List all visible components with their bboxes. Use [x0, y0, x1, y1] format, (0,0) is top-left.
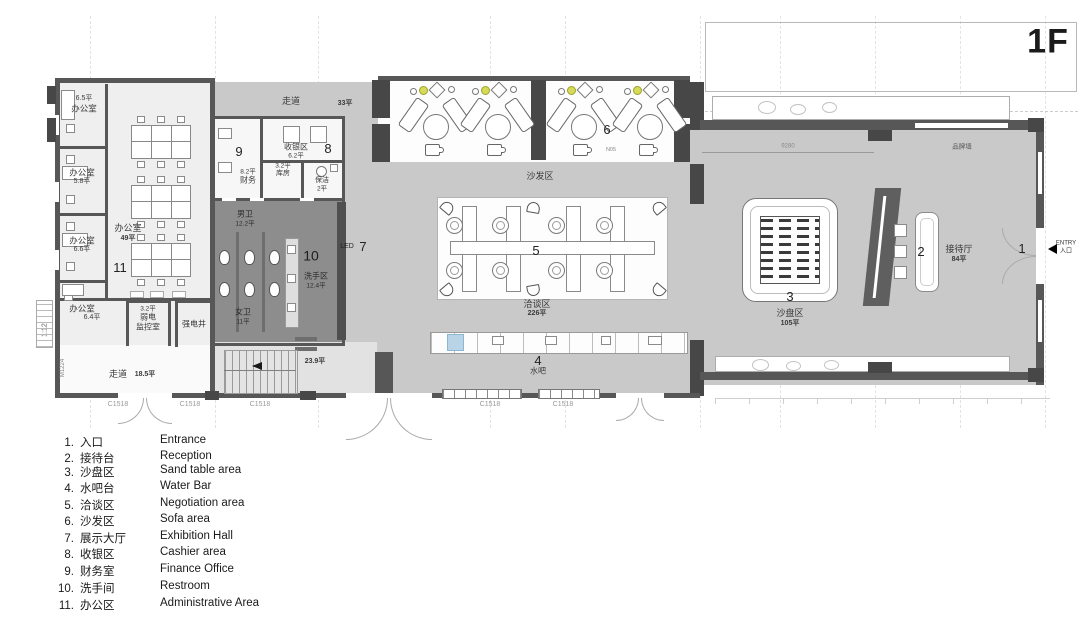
legend-en: Sand table area	[160, 464, 241, 476]
room-name: 保洁	[315, 177, 329, 185]
decor-circle	[558, 88, 565, 95]
column	[1028, 118, 1044, 132]
legend-row: 7.展示大厅Exhibition Hall	[52, 530, 392, 545]
wall	[342, 116, 345, 202]
wall	[105, 84, 108, 301]
sofa-cluster	[622, 90, 680, 160]
window-tag: C1518	[108, 401, 129, 409]
decor-circle	[472, 88, 479, 95]
sink	[287, 274, 296, 283]
armchair	[487, 144, 502, 156]
office-chair	[66, 155, 75, 164]
legend-zh: 洗手间	[80, 583, 115, 595]
room-name: 财务	[240, 177, 256, 186]
room-name: 洽谈区	[523, 300, 550, 310]
legend-zh: 入口	[80, 437, 103, 449]
armchair	[573, 144, 588, 156]
room-area: 105平	[781, 320, 800, 328]
brand-wall-label: 品牌墙	[952, 143, 972, 150]
pilaster	[47, 118, 56, 142]
office-chair	[157, 221, 165, 228]
bar-appliance	[601, 336, 611, 345]
water-bar-sink	[447, 334, 464, 351]
dimension-value: 9280	[781, 144, 794, 151]
room-name: 办公室	[71, 104, 97, 113]
wall	[260, 118, 263, 200]
wall	[57, 280, 107, 283]
desk-cluster	[131, 176, 191, 228]
door-tag: M1224	[60, 359, 66, 377]
office-chair	[157, 176, 165, 183]
legend-row: 10.洗手间Restroom	[52, 580, 392, 595]
decor-circle	[510, 86, 517, 93]
room-number: 3	[786, 290, 793, 304]
led-wall-label: LED	[340, 243, 354, 251]
cleaning-fixture	[330, 164, 338, 172]
canopy-tick-band	[715, 398, 1050, 404]
room-area: 5.8平	[74, 178, 91, 186]
entry-label-en: ENTRY	[1056, 241, 1076, 248]
room-area: 18.5平	[135, 371, 156, 379]
desk-grid	[131, 185, 191, 219]
furniture-tag: N05	[606, 147, 616, 153]
room-name: 强电井	[182, 321, 206, 330]
wall	[700, 372, 1042, 380]
room-area: 6.2平	[288, 152, 304, 159]
legend-number: 8.	[52, 549, 74, 561]
door-swing-arc	[390, 398, 432, 440]
room-name: 库房	[276, 170, 290, 178]
armchair-arm	[501, 147, 506, 153]
coffee-table	[571, 114, 597, 140]
room-number: 8	[324, 142, 331, 156]
toilet	[269, 250, 280, 265]
toilet	[269, 282, 280, 297]
room-number: 9	[235, 145, 242, 159]
armchair-arm	[587, 147, 592, 153]
armchair	[425, 144, 440, 156]
wall	[301, 162, 304, 200]
cashier-counter	[283, 126, 300, 143]
room-name: 女卫	[235, 309, 251, 318]
door-swing-arc	[616, 398, 639, 421]
legend-zh: 财务室	[80, 566, 115, 578]
legend-zh: 沙发区	[80, 516, 115, 528]
room-number: 2	[917, 245, 924, 259]
legend-number: 1.	[52, 437, 74, 449]
room-area: 84平	[952, 256, 967, 264]
room-name: 办公室	[114, 224, 141, 234]
door-swing-arc	[146, 398, 172, 424]
room-number: 5	[532, 244, 539, 258]
plant-accent	[567, 86, 576, 95]
room-area: 3.2平	[140, 305, 156, 312]
room-name: 走道	[109, 370, 127, 380]
round-chair	[492, 217, 509, 234]
legend-number: 9.	[52, 566, 74, 578]
led-wall	[337, 202, 346, 340]
room-area: 33平	[338, 100, 353, 108]
finance-desk	[218, 162, 232, 173]
legend-en: Finance Office	[160, 563, 234, 575]
legend-number: 6.	[52, 516, 74, 528]
office-chair	[177, 176, 185, 183]
wall	[175, 300, 213, 303]
round-chair	[596, 262, 613, 279]
office-chair	[177, 161, 185, 168]
column	[205, 391, 219, 400]
office-chair	[177, 116, 185, 123]
office-chair	[137, 279, 145, 286]
office-chair	[137, 176, 145, 183]
legend-en: Entrance	[160, 434, 206, 446]
wall	[57, 213, 107, 216]
office-chair	[177, 279, 185, 286]
legend-row: 8.收银区Cashier area	[52, 546, 392, 561]
armchair-arm	[439, 147, 444, 153]
plant-accent	[419, 86, 428, 95]
negotiation-table-long	[450, 241, 655, 255]
room-name: 弱电	[140, 314, 156, 323]
office-chair	[157, 161, 165, 168]
legend-row: 3.沙盘区Sand table area	[52, 464, 392, 479]
room-name: 收银区	[284, 144, 308, 153]
floor-plan-canvas: 1F M—2	[0, 0, 1080, 624]
toilet	[244, 250, 255, 265]
room-name: 办公室	[69, 304, 95, 313]
reception-stool	[894, 266, 907, 279]
plant-accent	[481, 86, 490, 95]
ramp	[36, 300, 53, 348]
legend-row: 1.入口Entrance	[52, 434, 392, 449]
room-area: 12.2平	[235, 220, 254, 227]
room-name: 水吧	[530, 368, 546, 377]
round-chair	[548, 217, 565, 234]
legend-row: 9.财务室Finance Office	[52, 563, 392, 578]
office-chair	[137, 234, 145, 241]
column	[1028, 368, 1044, 382]
door-opening	[250, 198, 264, 201]
legend-zh: 办公区	[80, 600, 115, 612]
office-chair	[66, 262, 75, 271]
room-name: 走道	[282, 97, 300, 107]
sofa-cluster	[408, 90, 466, 160]
armchair-arm	[653, 147, 658, 153]
room-area: 3.2平	[275, 162, 291, 169]
sink	[287, 245, 296, 254]
legend-zh: 沙盘区	[80, 467, 115, 479]
toilet	[219, 250, 230, 265]
wall	[375, 352, 393, 396]
office-cabinet	[62, 284, 84, 296]
feature-wall-slit	[873, 196, 887, 298]
dimension-line	[702, 152, 874, 153]
window-band	[538, 389, 600, 399]
wall-hatch	[295, 337, 317, 341]
room-area: 11平	[236, 318, 249, 325]
office-chair	[157, 234, 165, 241]
room-name: 办公室	[69, 168, 95, 177]
wall	[57, 146, 107, 149]
wall	[175, 300, 178, 347]
sofa-cluster	[470, 90, 528, 160]
wall	[213, 343, 345, 346]
window-slit	[1038, 300, 1042, 342]
column	[300, 391, 316, 400]
column	[690, 164, 704, 204]
plant-sketch	[786, 361, 801, 371]
round-chair	[492, 262, 509, 279]
wall	[210, 78, 215, 398]
room-area: 6.5平	[76, 95, 93, 103]
equipment-tag-box	[172, 291, 186, 298]
room-number: 10	[303, 248, 319, 263]
office-chair	[66, 195, 75, 204]
room-area: 8.2平	[240, 168, 256, 175]
office-chair	[66, 124, 75, 133]
round-chair	[446, 217, 463, 234]
stall-partition	[262, 232, 265, 332]
plant-sketch	[758, 101, 776, 114]
wall-hatch	[295, 347, 317, 351]
legend-row: 11.办公区Administrative Area	[52, 597, 392, 612]
plant-accent	[633, 86, 642, 95]
round-chair	[548, 262, 565, 279]
column	[372, 124, 390, 162]
office-chair	[157, 279, 165, 286]
window-slit	[1038, 152, 1042, 194]
bar-appliance	[492, 336, 504, 345]
armchair	[639, 144, 654, 156]
equipment-tag-box	[130, 291, 144, 298]
entry-opening	[1036, 228, 1044, 284]
decor-circle	[596, 86, 603, 93]
office-chair	[137, 161, 145, 168]
room-area: 12.4平	[306, 282, 325, 289]
sand-table-model	[760, 216, 820, 284]
legend-row: 6.沙发区Sofa area	[52, 513, 392, 528]
sink	[287, 303, 296, 312]
office-chair	[157, 116, 165, 123]
office-chair	[177, 234, 185, 241]
legend-zh: 水吧台	[80, 483, 115, 495]
legend-en: Administrative Area	[160, 597, 259, 609]
legend-en: Sofa area	[160, 513, 210, 525]
window-slit	[55, 250, 59, 270]
coffee-table	[423, 114, 449, 140]
room-name: 接待厅	[945, 245, 972, 255]
office-chair	[137, 116, 145, 123]
column	[868, 362, 892, 373]
stairs	[224, 350, 298, 394]
wall	[213, 116, 345, 119]
door-opening	[222, 198, 236, 201]
legend-zh: 展示大厅	[80, 533, 126, 545]
window-tag: C1518	[180, 401, 201, 409]
wall	[126, 300, 171, 303]
room-name: 沙发区	[526, 172, 553, 182]
window-tag: C1518	[553, 401, 574, 409]
office-chair	[177, 221, 185, 228]
room-name: 监控室	[136, 324, 160, 333]
office-chair	[66, 222, 75, 231]
column	[690, 340, 704, 396]
wall	[126, 300, 129, 346]
room-number: 11	[113, 261, 127, 275]
plant-sketch	[752, 359, 769, 371]
column	[868, 130, 892, 141]
room-name: 沙盘区	[776, 309, 803, 319]
plant-band	[712, 96, 1010, 120]
reception-stool	[894, 224, 907, 237]
round-chair	[446, 262, 463, 279]
coffee-table	[485, 114, 511, 140]
legend-zh: 收银区	[80, 549, 115, 561]
desk-grid	[131, 125, 191, 159]
cleaning-sink	[316, 166, 327, 177]
room-area: 2平	[317, 185, 327, 192]
canopy-outline	[705, 22, 1077, 92]
desk-cluster	[131, 116, 191, 168]
room-number: 1	[1018, 242, 1025, 256]
room-area: 6.4平	[84, 314, 101, 322]
room-number: 7	[359, 240, 366, 254]
legend-en: Cashier area	[160, 546, 226, 558]
window-tag: C1518	[480, 401, 501, 409]
pilaster	[47, 86, 56, 104]
window-band	[442, 389, 522, 399]
entry-label-zh: 入口	[1060, 249, 1072, 256]
plant-sketch	[824, 360, 839, 370]
decor-circle	[410, 88, 417, 95]
door-opening	[300, 198, 314, 201]
equipment-tag-box	[150, 291, 164, 298]
legend-number: 11.	[52, 600, 74, 612]
wall	[168, 300, 171, 346]
door-swing-arc	[641, 398, 664, 421]
coffee-table	[637, 114, 663, 140]
room-area: 49平	[121, 235, 136, 243]
finance-desk	[218, 128, 232, 139]
legend-en: Water Bar	[160, 480, 211, 492]
room-name: 洗手区	[304, 273, 328, 282]
room-number: 6	[603, 123, 610, 137]
decor-circle	[624, 88, 631, 95]
room-area: 23.9平	[305, 358, 326, 366]
legend-zh: 洽谈区	[80, 500, 115, 512]
legend-row: 5.洽谈区Negotiation area	[52, 497, 392, 512]
legend-row: 4.水吧台Water Bar	[52, 480, 392, 495]
decor-circle	[662, 86, 669, 93]
toilet	[219, 282, 230, 297]
legend-row: 2.接待台Reception	[52, 450, 392, 465]
column	[372, 80, 390, 118]
room-area: 6.6平	[74, 246, 91, 254]
bar-appliance	[545, 336, 557, 345]
wall	[55, 78, 215, 83]
window-tag: C1518	[250, 401, 271, 409]
legend-number: 7.	[52, 533, 74, 545]
stair-direction-arrow	[252, 362, 262, 370]
bar-appliance	[648, 336, 662, 345]
legend-en: Restroom	[160, 580, 210, 592]
brand-wall-strip	[915, 123, 1008, 128]
legend-number: 5.	[52, 500, 74, 512]
legend-en: Reception	[160, 450, 212, 462]
round-chair	[596, 217, 613, 234]
stair-landing-line	[224, 370, 296, 371]
room-name: 办公室	[69, 236, 95, 245]
desk-cluster	[131, 234, 191, 286]
legend-number: 3.	[52, 467, 74, 479]
room-name: 男卫	[237, 211, 253, 220]
legend-en: Exhibition Hall	[160, 530, 233, 542]
room-area: 226平	[528, 310, 547, 318]
decor-circle	[448, 86, 455, 93]
plant-sketch	[790, 104, 806, 115]
plant-sketch	[822, 102, 837, 113]
column	[531, 80, 546, 160]
window-slit	[55, 182, 59, 202]
desk-grid	[131, 243, 191, 277]
legend-en: Negotiation area	[160, 497, 244, 509]
reception-stool	[894, 245, 907, 258]
toilet	[244, 282, 255, 297]
legend-number: 4.	[52, 483, 74, 495]
legend-number: 10.	[52, 583, 74, 595]
